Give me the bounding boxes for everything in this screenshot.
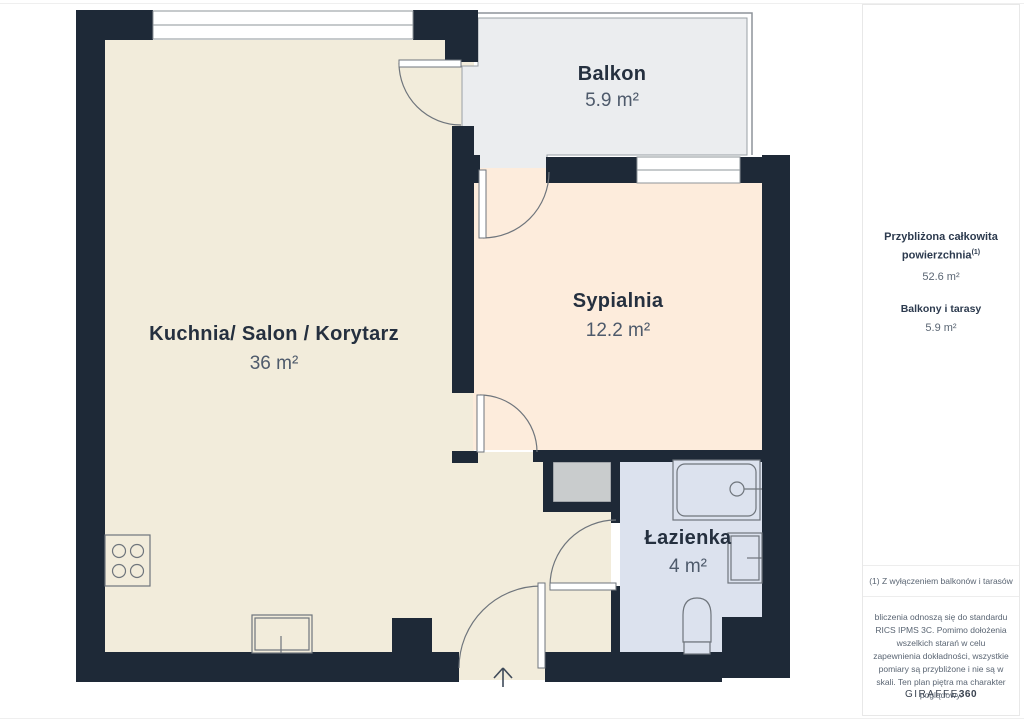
brand-name: GIRAFFE — [905, 689, 959, 700]
room-area-balkon: 5.9 m² — [585, 90, 639, 111]
wall-segment — [452, 451, 478, 463]
wall-segment — [445, 38, 478, 62]
toilet-cistern — [684, 642, 710, 654]
shower-niche — [553, 462, 611, 502]
wall-segment — [76, 652, 459, 682]
total-area-label: Przybliżona całkowita powierzchnia(1) — [863, 229, 1019, 264]
floorplan-page: { "plan": { "rooms": [ {"id": "balkon", … — [0, 0, 1024, 724]
toilet-icon — [683, 598, 711, 654]
wall-segment — [722, 617, 790, 678]
wall-segment — [546, 157, 637, 183]
room-area-lazienka: 4 m² — [669, 556, 707, 577]
floorplan-drawing: Balkon 5.9 m² Kuchnia/ Salon / Korytarz … — [0, 0, 862, 724]
total-area-footnote-marker: (1) — [972, 249, 981, 256]
footnote: (1) Z wyłączeniem balkonów i tarasów — [863, 565, 1019, 597]
wall-segment — [392, 618, 432, 652]
wall-segment — [543, 502, 611, 512]
giraffe360-logo: GIRAFFE360 — [863, 689, 1019, 700]
door-leaf — [550, 583, 616, 590]
room-label-lazienka: Łazienka — [645, 527, 732, 549]
balconies-label: Balkony i tarasy — [863, 303, 1019, 315]
door-leaf — [538, 583, 545, 668]
wall-segment — [413, 10, 478, 40]
wall-segment — [76, 10, 105, 682]
room-label-kuchnia: Kuchnia/ Salon / Korytarz — [149, 323, 399, 345]
wall-segment — [611, 586, 620, 653]
area-summary: Przybliżona całkowita powierzchnia(1) 52… — [863, 229, 1019, 334]
entrance-threshold-floor — [459, 652, 545, 680]
balconies-value: 5.9 m² — [863, 322, 1019, 334]
door-leaf — [479, 170, 486, 238]
room-label-sypialnia: Sypialnia — [573, 290, 664, 312]
stove-body — [105, 535, 150, 586]
bathtub-icon — [673, 460, 762, 520]
stove-icon — [105, 535, 150, 586]
wall-segment — [762, 155, 790, 678]
sink-outer — [252, 615, 312, 653]
wall-segment — [452, 126, 474, 393]
door-leaf — [477, 395, 484, 452]
room-label-balkon: Balkon — [578, 63, 646, 85]
room-area-kuchnia: 36 m² — [250, 353, 299, 374]
total-area-label-text: Przybliżona całkowita powierzchnia — [884, 231, 998, 262]
wall-segment — [740, 157, 763, 183]
room-area-sypialnia: 12.2 m² — [586, 320, 650, 341]
toilet-bowl — [683, 598, 711, 642]
total-area-value: 52.6 m² — [863, 271, 1019, 283]
wall-segment — [76, 10, 153, 40]
floors — [105, 13, 762, 680]
wall-segment — [545, 652, 722, 682]
bathtub-outer — [673, 460, 760, 520]
brand-suffix: 360 — [959, 689, 977, 700]
wall-segment — [611, 458, 620, 523]
summary-panel: Przybliżona całkowita powierzchnia(1) 52… — [862, 4, 1020, 716]
kitchen-sink-icon — [252, 615, 312, 653]
washbasin-icon — [728, 533, 762, 583]
door-leaf — [399, 60, 461, 67]
main-room-floor — [105, 40, 474, 652]
